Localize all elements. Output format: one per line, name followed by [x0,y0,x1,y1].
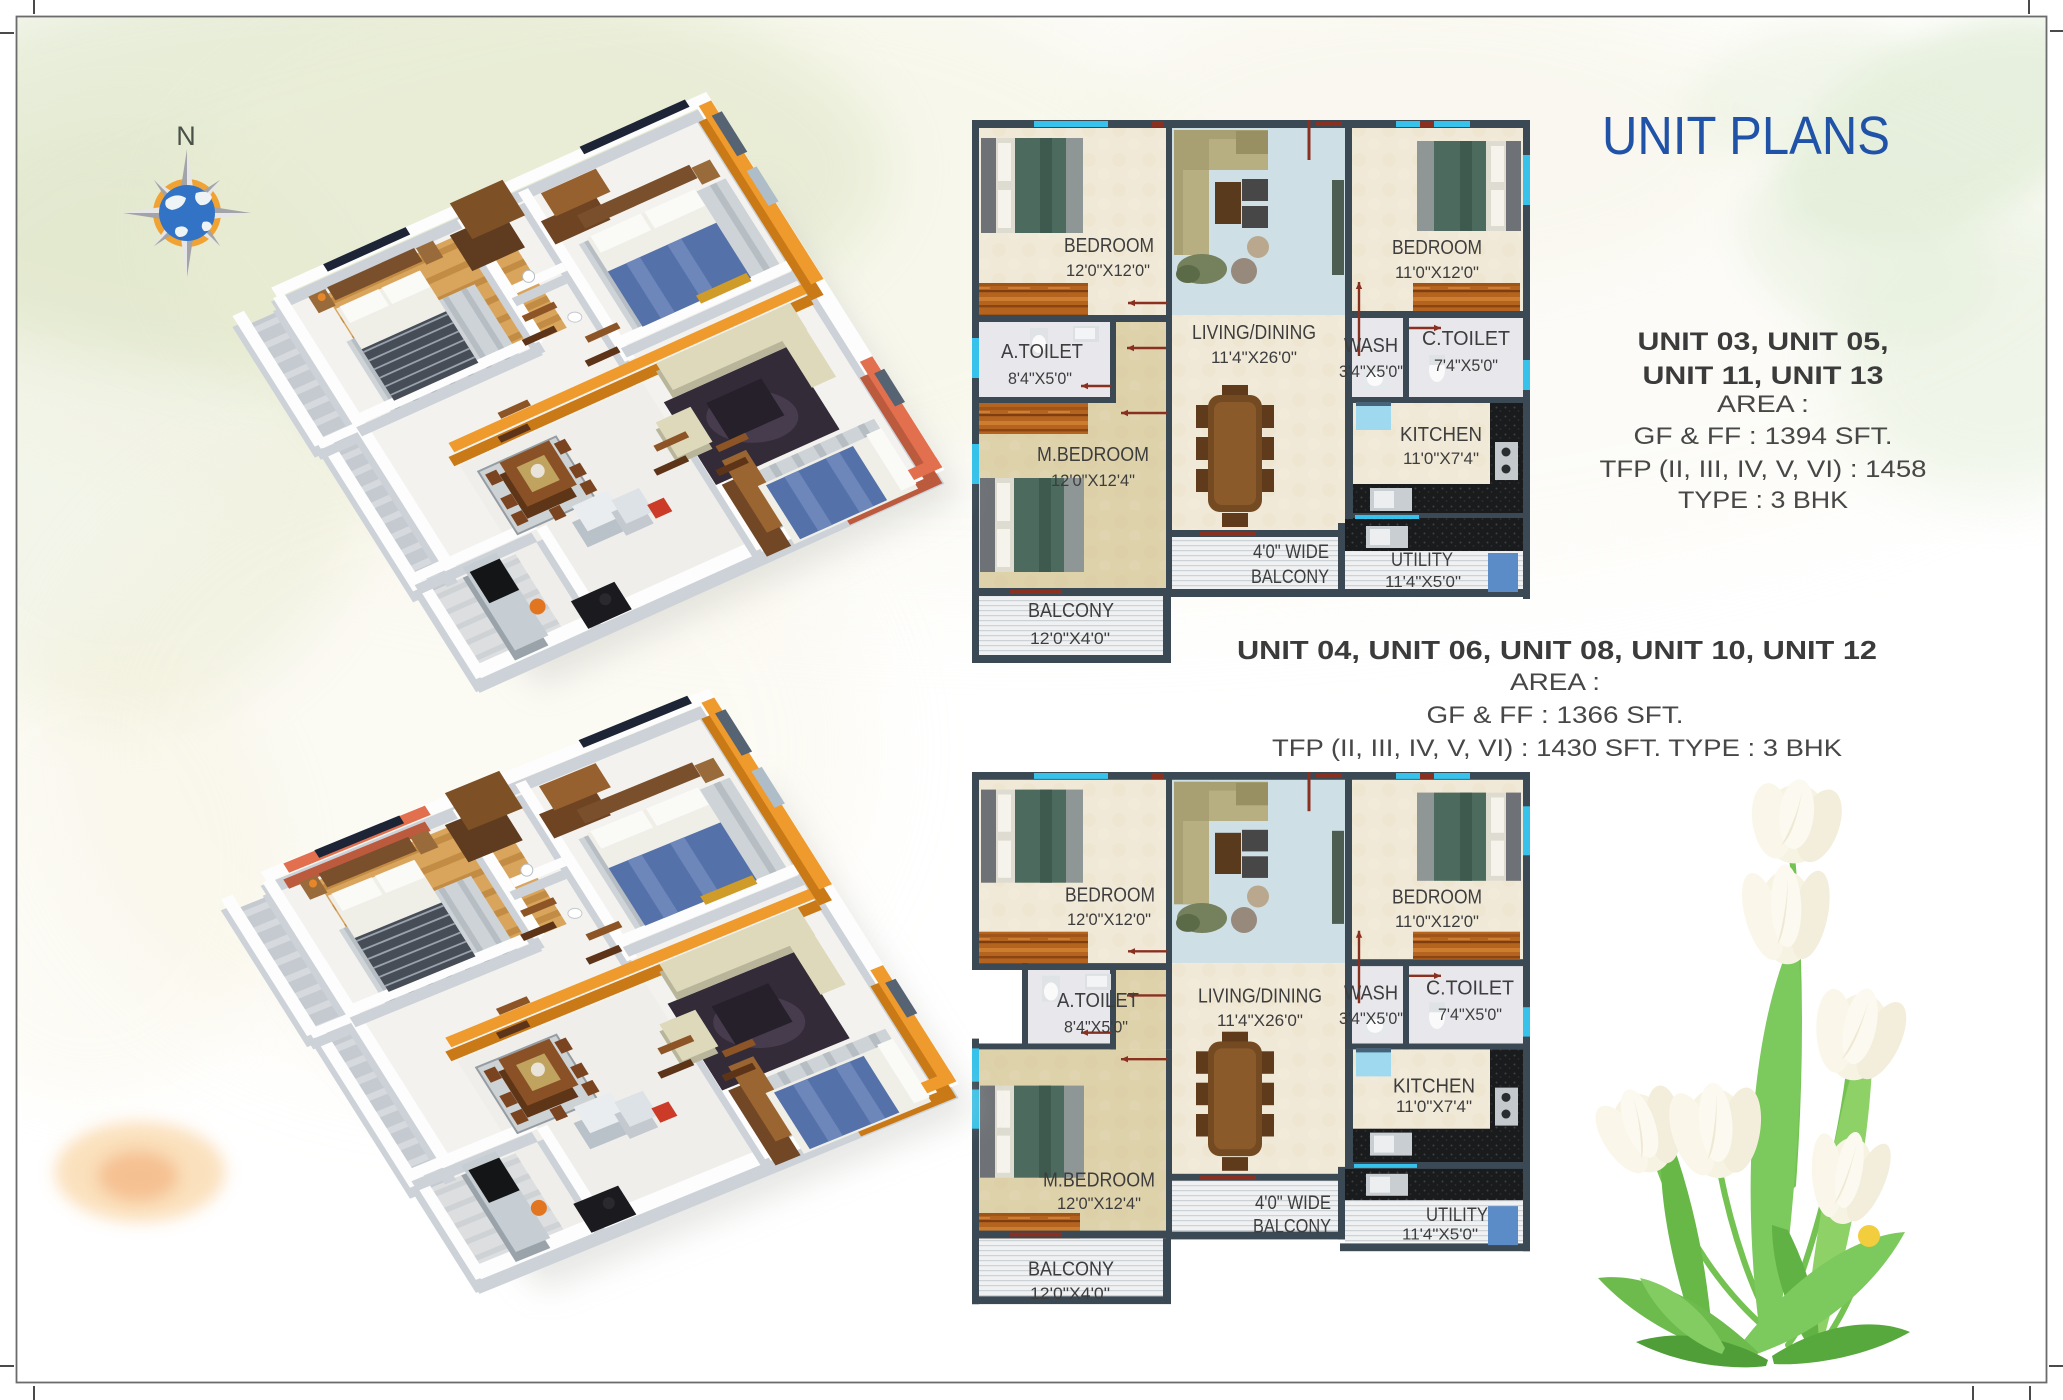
svg-text:BALCONY: BALCONY [1253,1217,1331,1238]
svg-text:BALCONY: BALCONY [1251,567,1329,588]
svg-text:BEDROOM: BEDROOM [1065,884,1155,906]
svg-text:3'4"X5'0": 3'4"X5'0" [1339,1009,1403,1028]
svg-text:LIVING/DINING: LIVING/DINING [1192,322,1316,344]
svg-text:BEDROOM: BEDROOM [1392,886,1482,908]
svg-text:BALCONY: BALCONY [1028,1259,1114,1281]
svg-text:GF & FF : 1394 SFT.: GF & FF : 1394 SFT. [1634,423,1893,450]
svg-text:11'0"X7'4": 11'0"X7'4" [1403,449,1479,468]
svg-text:12'0"X12'4": 12'0"X12'4" [1057,1194,1141,1213]
svg-text:BALCONY: BALCONY [1028,600,1114,622]
svg-text:4'0" WIDE: 4'0" WIDE [1253,542,1329,563]
svg-text:11'4"X26'0": 11'4"X26'0" [1211,348,1297,367]
svg-text:LIVING/DINING: LIVING/DINING [1198,985,1322,1007]
svg-text:KITCHEN: KITCHEN [1400,424,1482,446]
svg-text:UTILITY: UTILITY [1426,1205,1488,1226]
svg-text:7'4"X5'0": 7'4"X5'0" [1434,356,1498,375]
svg-text:11'4"X26'0": 11'4"X26'0" [1217,1011,1303,1030]
svg-text:TFP (II, III, IV, V, VI) : 143: TFP (II, III, IV, V, VI) : 1430 SFT. TYP… [1272,735,1842,762]
svg-text:GF & FF : 1366 SFT.: GF & FF : 1366 SFT. [1427,702,1684,729]
svg-text:A.TOILET: A.TOILET [1001,341,1083,363]
svg-text:C.TOILET: C.TOILET [1422,328,1510,350]
svg-text:UTILITY: UTILITY [1391,550,1453,571]
svg-text:C.TOILET: C.TOILET [1426,978,1514,1000]
svg-text:N: N [176,121,196,151]
svg-text:11'4"X5'0": 11'4"X5'0" [1385,574,1461,591]
svg-text:AREA :: AREA : [1717,391,1809,418]
svg-text:A.TOILET: A.TOILET [1057,990,1139,1012]
svg-text:BEDROOM: BEDROOM [1392,237,1482,259]
svg-text:12'0"X12'0": 12'0"X12'0" [1067,910,1151,929]
svg-text:11'0"X12'0": 11'0"X12'0" [1395,912,1479,931]
svg-text:WASH: WASH [1344,335,1398,357]
svg-text:8'4"X5'0": 8'4"X5'0" [1008,369,1072,388]
svg-text:4'0" WIDE: 4'0" WIDE [1255,1193,1331,1214]
svg-text:3'4"X5'0": 3'4"X5'0" [1339,362,1403,381]
svg-text:TFP (II, III, IV, V, VI) : 145: TFP (II, III, IV, V, VI) : 1458 [1600,456,1927,483]
svg-text:TYPE : 3 BHK: TYPE : 3 BHK [1678,487,1848,514]
svg-text:12'0"X12'4": 12'0"X12'4" [1051,471,1135,490]
svg-text:WASH: WASH [1344,982,1398,1004]
svg-text:AREA :: AREA : [1510,669,1600,696]
svg-text:7'4"X5'0": 7'4"X5'0" [1438,1005,1502,1024]
svg-text:KITCHEN: KITCHEN [1393,1076,1475,1098]
svg-text:UNIT 11, UNIT 13: UNIT 11, UNIT 13 [1643,362,1884,390]
svg-text:11'0"X12'0": 11'0"X12'0" [1395,263,1479,282]
svg-text:UNIT PLANS: UNIT PLANS [1602,106,1890,166]
svg-text:12'0"X4'0": 12'0"X4'0" [1030,629,1110,648]
svg-text:12'0"X4'0": 12'0"X4'0" [1030,1284,1110,1303]
svg-text:12'0"X12'0": 12'0"X12'0" [1066,261,1150,280]
svg-text:11'0"X7'4": 11'0"X7'4" [1396,1097,1472,1116]
svg-text:UNIT 04, UNIT 06, UNIT 08, UNI: UNIT 04, UNIT 06, UNIT 08, UNIT 10, UNIT… [1237,635,1877,665]
svg-text:11'4"X5'0": 11'4"X5'0" [1402,1227,1478,1244]
svg-text:UNIT 03, UNIT 05,: UNIT 03, UNIT 05, [1638,328,1889,356]
svg-text:M.BEDROOM: M.BEDROOM [1037,444,1149,466]
svg-text:8'4"X5'0": 8'4"X5'0" [1064,1018,1128,1037]
svg-text:M.BEDROOM: M.BEDROOM [1043,1170,1155,1192]
svg-text:BEDROOM: BEDROOM [1064,235,1154,257]
